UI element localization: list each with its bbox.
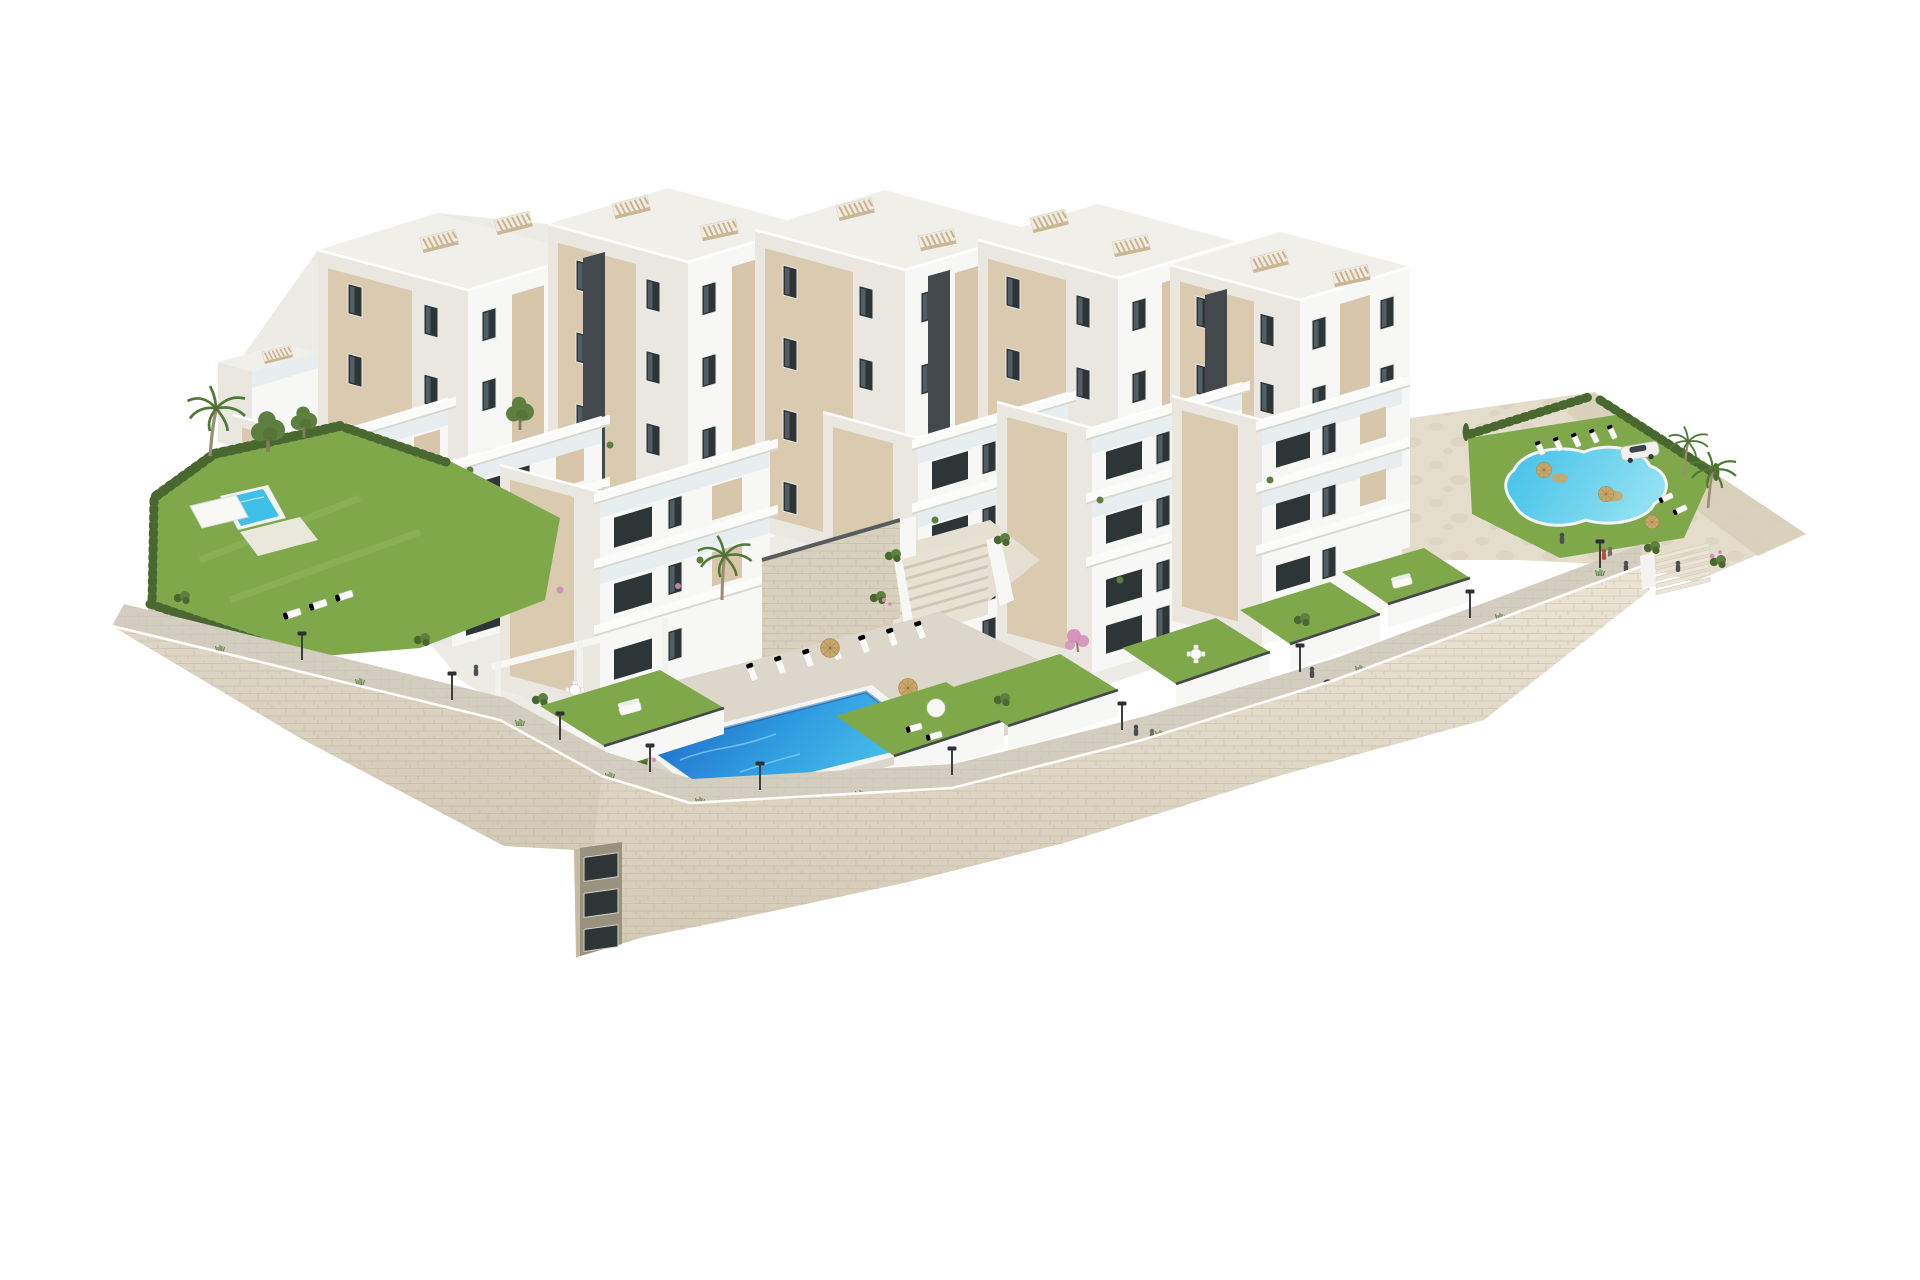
right-lagoon-pool — [1506, 447, 1667, 525]
pedestrian — [1560, 533, 1565, 544]
gate-pillar — [1640, 552, 1656, 590]
straw-parasol — [1598, 486, 1613, 501]
straw-parasol — [821, 639, 840, 658]
architectural-render — [0, 0, 1920, 1280]
pool-island — [1552, 473, 1568, 483]
white-parasol — [927, 699, 945, 717]
straw-parasol — [1645, 515, 1659, 529]
pedestrian — [1602, 549, 1607, 560]
straw-parasol — [1536, 462, 1551, 477]
pedestrian — [474, 665, 479, 676]
cypress-hedge — [152, 500, 154, 604]
pedestrian — [1134, 725, 1139, 736]
service-shaft — [574, 842, 622, 958]
pedestrian — [1310, 667, 1315, 678]
cypress-tree — [1463, 423, 1470, 441]
pedestrian — [1676, 561, 1681, 572]
